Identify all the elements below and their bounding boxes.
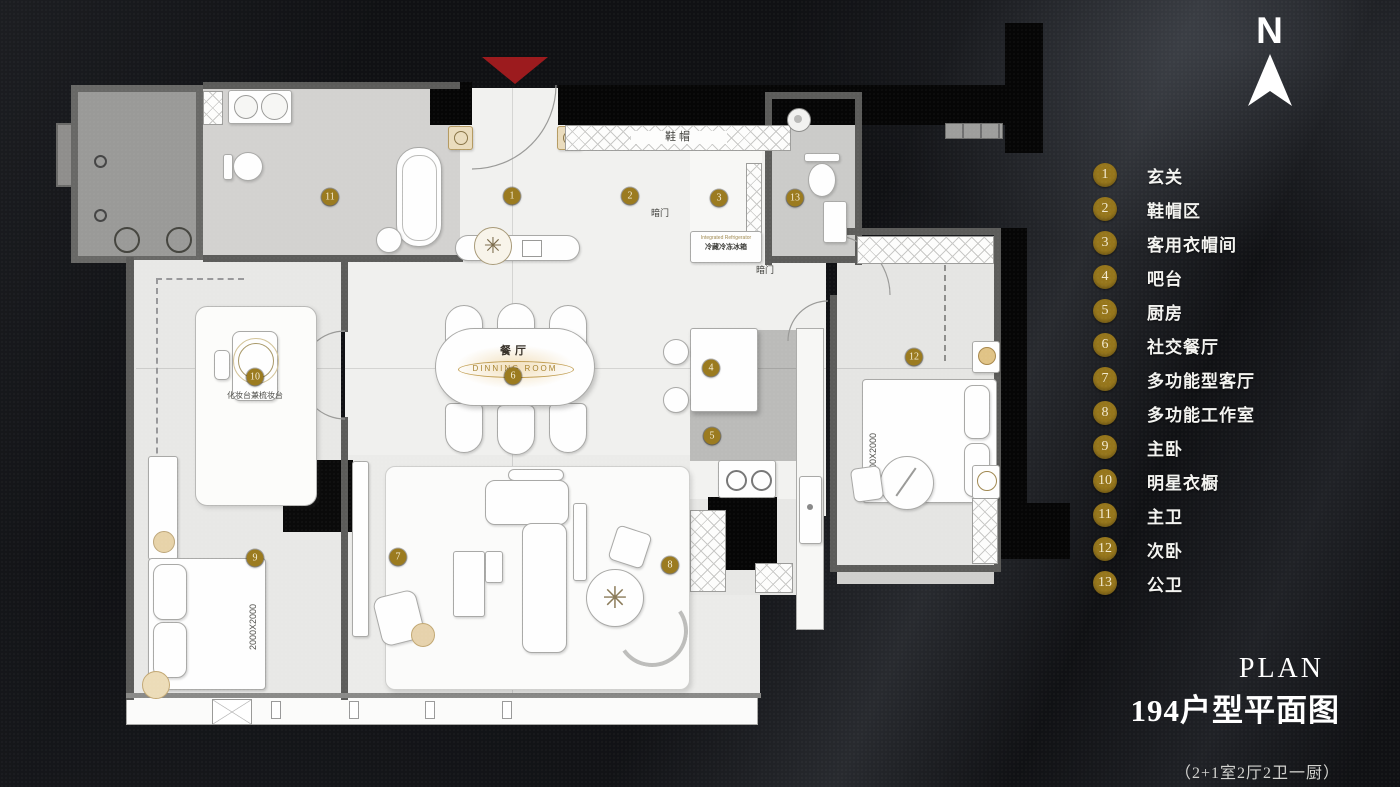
entry-arrow-icon [482,57,548,84]
elevator-mark [114,227,140,253]
pantry-cabinet [690,510,726,592]
legend-number-badge: 1 [1093,163,1117,187]
plan-room-marker: 13 [787,190,804,207]
dining-label-zh: 餐厅 [455,345,575,358]
master-bed-size: 2000X2000 [248,570,258,650]
kitchen-sink [799,476,822,544]
legend-number: 6 [1102,337,1109,353]
legend-number-badge: 12 [1093,537,1117,561]
legend-item: 10 明星衣橱 [1093,469,1255,493]
bath-stool [376,227,402,253]
plan-room-marker: 1 [504,188,521,205]
sofa-back-panel [573,503,587,581]
coffee-table [453,551,485,617]
fridge-label-en: Integrated Refrigerator [692,236,760,242]
legend-number: 13 [1098,575,1112,591]
cloakroom-wardrobe [746,163,762,233]
legend-item: 9 主卧 [1093,435,1255,459]
bar-stool [663,339,689,365]
dining-chair [445,403,483,453]
closet-dashed-top [156,278,244,280]
floor-plan: ✳ 鞋帽 暗门 Integrated Refrigerator 冷藏冷冻冰箱 暗… [56,57,1072,730]
legend-label: 公卫 [1147,571,1183,596]
dining-chair [497,405,535,455]
legend-number: 9 [1102,439,1109,455]
plan-room-marker: 7 [390,549,407,566]
plan-title-zh: 194户型平面图 [1110,685,1340,730]
elevator-mark [166,227,192,253]
pillow [153,564,187,620]
bar-counter [690,328,758,412]
elevator-mark [94,155,107,168]
north-label: N [1240,10,1300,52]
legend-label: 吧台 [1147,265,1183,290]
legend-number: 11 [1098,507,1111,523]
console-tray [522,240,542,257]
nightstand-deco [977,471,997,491]
legend-number: 4 [1102,269,1109,285]
bath13-cabinet [823,201,847,243]
bar-stool [663,387,689,413]
burner [751,470,772,491]
window-bench [352,461,369,637]
pantry-box [755,563,793,593]
plan-room-marker: 3 [711,190,728,207]
legend-number: 5 [1102,303,1109,319]
legend-item: 11 主卫 [1093,503,1255,527]
nightstand-lamp [978,347,996,365]
basin [234,95,258,119]
legend-label: 客用衣帽间 [1147,231,1237,256]
title-block: PLAN 194户型平面图 （2+1室2厅2卫一厨） [1110,653,1340,783]
sofa-seat-long [522,523,567,653]
balcony-column [349,701,359,719]
hidden-door-label: 暗门 [651,208,669,218]
shower-niche [203,91,223,125]
legend-label: 厨房 [1147,299,1183,324]
bedroom2-chair [850,465,884,503]
legend-number: 2 [1102,201,1109,217]
legend: 1 玄关 2 鞋帽区 3 客用衣帽间 4 吧台 5 厨房 6 社交餐厅 7 多功… [1093,163,1255,605]
legend-number-badge: 8 [1093,401,1117,425]
legend-number: 1 [1102,167,1109,183]
bed-stool [142,671,170,699]
legend-item: 5 厨房 [1093,299,1255,323]
legend-number: 10 [1098,473,1112,489]
legend-label: 社交餐厅 [1147,333,1219,358]
shoe-cabinet-label: 鞋帽 [631,131,727,144]
legend-label: 明星衣橱 [1147,469,1219,494]
bath13-sink-dot [794,115,802,123]
sofa-seat-top [485,480,569,525]
pillow [153,622,187,678]
legend-item: 3 客用衣帽间 [1093,231,1255,255]
legend-number-badge: 5 [1093,299,1117,323]
legend-number-badge: 6 [1093,333,1117,357]
toilet-bowl [808,163,836,197]
legend-number-badge: 11 [1093,503,1117,527]
plan-room-marker: 9 [247,550,264,567]
sink-faucet [807,504,813,510]
plan-subtitle: （2+1室2厅2卫一厨） [1110,759,1340,783]
legend-item: 2 鞋帽区 [1093,197,1255,221]
hidden-door-label: 暗门 [756,265,774,275]
legend-item: 7 多功能型客厅 [1093,367,1255,391]
plan-room-marker: 5 [704,428,721,445]
legend-label: 主卫 [1147,503,1183,528]
coffee-table-small [485,551,503,583]
bathtub-inner [402,155,437,241]
plan-room-marker: 2 [622,188,639,205]
balcony-xbox [212,699,252,725]
toilet-tank [804,153,840,162]
legend-item: 1 玄关 [1093,163,1255,187]
dining-chair [549,403,587,453]
plan-room-marker: 8 [662,557,679,574]
legend-number-badge: 13 [1093,571,1117,595]
plan-room-marker: 6 [505,368,522,385]
slide-canvas: ✳ 鞋帽 暗门 Integrated Refrigerator 冷藏冷冻冰箱 暗… [0,0,1400,787]
bedroom2-table [880,456,934,510]
dressing-table-label: 化妆台兼梳妆台 [200,391,310,400]
legend-number-badge: 2 [1093,197,1117,221]
legend-number-badge: 10 [1093,469,1117,493]
legend-number: 8 [1102,405,1109,421]
legend-item: 13 公卫 [1093,571,1255,595]
bedroom2-closet-dashed [944,265,946,361]
toilet-bowl [233,152,263,181]
legend-label: 主卧 [1147,435,1183,460]
legend-number: 7 [1102,371,1109,387]
legend-number-badge: 3 [1093,231,1117,255]
elevator-mark [94,209,107,222]
legend-label: 多功能工作室 [1147,401,1255,426]
legend-number-badge: 9 [1093,435,1117,459]
dressing-seat [214,350,230,380]
balcony-column [502,701,512,719]
console-plant: ✳ [474,227,512,265]
legend-number: 12 [1098,541,1112,557]
pillow [964,385,990,439]
toilet-tank [223,154,233,180]
side-table [411,623,435,647]
legend-label: 次卧 [1147,537,1183,562]
plan-room-marker: 11 [322,189,339,206]
basin [261,93,288,120]
plan-room-marker: 10 [247,369,264,386]
plan-room-marker: 12 [906,349,923,366]
legend-item: 12 次卧 [1093,537,1255,561]
nightstand-lamp [153,531,175,553]
plan-room-marker: 4 [703,360,720,377]
legend-label: 多功能型客厅 [1147,367,1255,392]
bedroom2-wardrobe [857,236,994,264]
bedroom2-cabinet [972,498,998,564]
legend-label: 玄关 [1147,163,1183,188]
legend-number-badge: 4 [1093,265,1117,289]
legend-item: 4 吧台 [1093,265,1255,289]
balcony-column [271,701,281,719]
entry-door-pad-dot [454,131,468,145]
plan-title-en: PLAN [1110,653,1324,685]
fridge-label-zh: 冷藏冷冻冰箱 [692,244,760,252]
legend-number-badge: 7 [1093,367,1117,391]
north-arrow-icon [1248,54,1292,106]
burner [726,470,747,491]
legend-item: 6 社交餐厅 [1093,333,1255,357]
legend-label: 鞋帽区 [1147,197,1201,222]
legend-item: 8 多功能工作室 [1093,401,1255,425]
balcony-column [425,701,435,719]
legend-number: 3 [1102,235,1109,251]
